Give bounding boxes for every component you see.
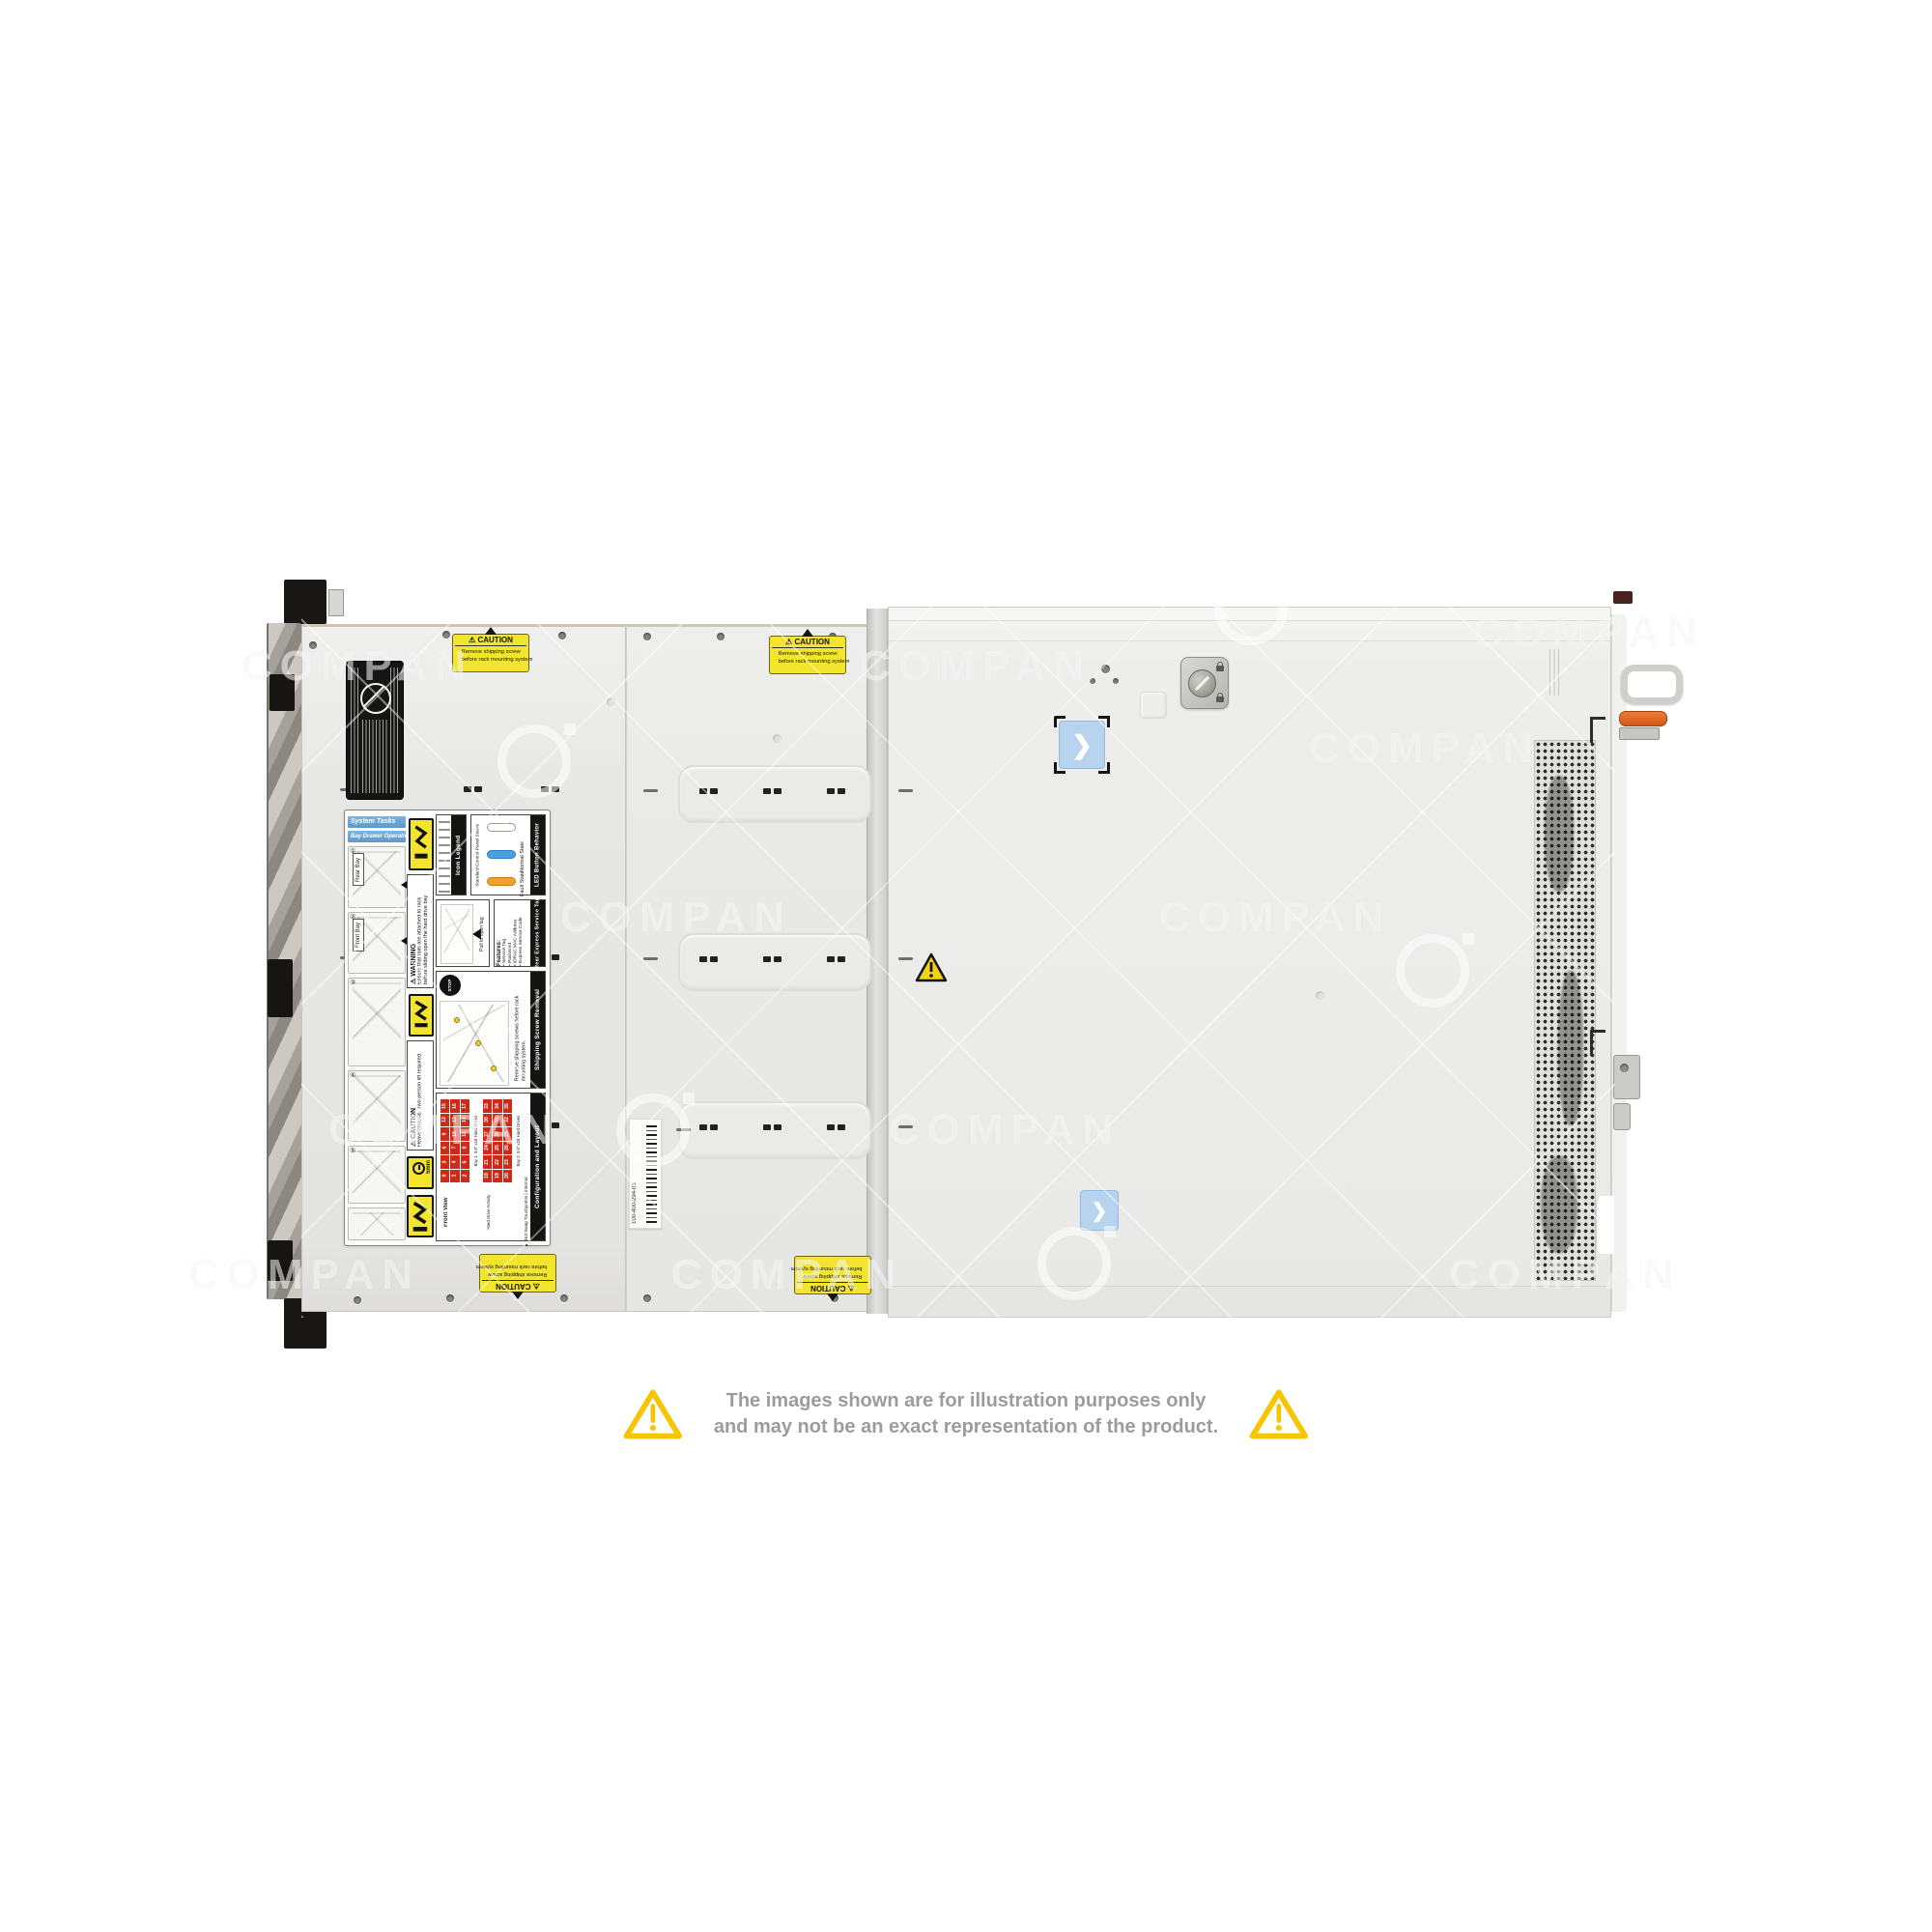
pinch-hazard-icon [407, 1195, 434, 1237]
rear-cap [1613, 591, 1633, 604]
drive-slot-1: 1 [450, 1170, 459, 1183]
caution-label-top-2: ⚠ CAUTION Remove shipping screw before r… [769, 636, 846, 674]
drive-grid-bay2: 333435303132272829242526212223181920 [483, 1099, 512, 1182]
rear-tag-content: Features: • Service Tag• Password• iDRAC… [497, 902, 531, 966]
vent-slot-pair [699, 1124, 718, 1130]
drive-slot-27: 27 [483, 1127, 492, 1141]
lock-icon [1216, 696, 1224, 702]
lock-knob [1188, 669, 1216, 697]
screw-hole [558, 632, 566, 639]
drive-slot-20: 20 [503, 1170, 512, 1183]
stop-icon: STOP [440, 975, 461, 996]
stamped-recess [678, 765, 871, 823]
corner-mark [1098, 762, 1110, 774]
drive-slot-3: 3 [440, 1155, 449, 1169]
drive-slot-10: 10 [450, 1127, 459, 1141]
drive-slot-11: 11 [461, 1127, 469, 1141]
vent-slot-pair [763, 956, 781, 962]
led-blank-state [487, 823, 516, 832]
front-corner-cap-top [284, 580, 327, 624]
drive-slot-29: 29 [503, 1127, 512, 1141]
drive-slot-18: 18 [483, 1170, 492, 1183]
bay-drawer-header: Bay Drawer Operation [348, 831, 406, 842]
vent-shadow [1545, 776, 1574, 892]
cover-top-bevel [889, 608, 1610, 621]
shipping-screw-box: STOP Remove shipping screws before rack … [436, 971, 546, 1089]
chevron-right-icon: ❯ [1071, 730, 1093, 760]
rear-metal-latch [1619, 727, 1660, 740]
step-number: ⑤ [350, 1147, 355, 1154]
drive-slot-34: 34 [493, 1099, 501, 1113]
caution-label-top-1: ⚠ CAUTION Remove shipping screw before r… [452, 634, 529, 672]
screw-dot [491, 1065, 497, 1071]
screw-hole [1113, 678, 1119, 684]
screw-hole [560, 1294, 568, 1302]
vent-slot-pair [699, 956, 718, 962]
shipping-header: Shipping Screw Removal [530, 972, 545, 1088]
barcode-number: 100-400-294-03 [632, 1123, 638, 1224]
barcode-icon [646, 1124, 657, 1223]
dash-mark [676, 1128, 691, 1131]
icon-legend-glyphs [439, 819, 450, 893]
dash-mark [898, 789, 913, 792]
bay1-label: Bay 1: 3.5" x18 Hard Drives [472, 1108, 480, 1173]
regulatory-label [346, 661, 404, 800]
corner-mark [1054, 716, 1065, 727]
led-fault-label: Fault State [518, 869, 527, 898]
drive-slot-17: 17 [461, 1099, 469, 1113]
cover-lock-plate [1180, 657, 1229, 709]
warning-box: ⚠ WARNING Ensure that rails are attached… [407, 874, 434, 988]
edge-bracket-mark [1590, 717, 1605, 743]
regulatory-microtext [390, 668, 399, 793]
icon-legend-box: Icon Legend [436, 814, 467, 895]
screw-hole [717, 633, 724, 640]
drive-slot-25: 25 [493, 1142, 501, 1155]
cover-edge-notch [1596, 1196, 1614, 1254]
drive-slot-21: 21 [483, 1155, 492, 1169]
product-photo-canvas: ⚠ CAUTION Remove shipping screw before r… [0, 0, 1932, 1932]
drive-slot-23: 23 [503, 1155, 512, 1169]
drive-slot-31: 31 [493, 1114, 501, 1127]
vent-slot-pair [827, 956, 845, 962]
step-number: ② [350, 913, 355, 921]
led-behavior-box: Standard Control Panel States Normal Sta… [470, 814, 546, 895]
stamped-recess [678, 933, 871, 991]
corner-mark [1054, 762, 1065, 774]
corner-mark [1098, 716, 1110, 727]
pinch-hazard-icon [409, 994, 434, 1037]
drive-slot-5: 5 [461, 1155, 469, 1169]
cover-seam-line [889, 640, 1610, 641]
rail-slot [268, 1240, 293, 1281]
vent-shadow [1558, 971, 1583, 1125]
cover-bottom-band [889, 1286, 1610, 1317]
crossed-circle-icon [360, 683, 391, 714]
vent-slot-pair [464, 786, 482, 792]
drive-slot-2: 2 [461, 1170, 469, 1183]
drive-slot-0: 0 [440, 1170, 449, 1183]
dash-mark [898, 1125, 913, 1128]
disclaimer-text: The images shown are for illustration pu… [714, 1388, 1218, 1440]
drive-slot-13: 13 [450, 1114, 459, 1127]
pinch-hazard-icon [409, 818, 434, 870]
vent-shadow [1541, 1156, 1577, 1253]
stamped-recess [678, 1101, 871, 1159]
caution-label-bottom-1: ⚠ CAUTION Remove shipping screw before r… [479, 1254, 556, 1293]
front-latch-tab [328, 589, 344, 616]
config-layout-box: 15161712131491011678345012 Bay 1: 3.5" x… [436, 1093, 546, 1241]
led-normal-state [487, 850, 516, 859]
drive-slot-22: 22 [493, 1155, 501, 1169]
disclaimer: The images shown are for illustration pu… [621, 1385, 1311, 1443]
dash-mark [643, 789, 658, 792]
screw-dot [475, 1040, 481, 1046]
etched-text [1549, 649, 1562, 696]
rear-bracket [1613, 1055, 1640, 1099]
drive-slot-33: 33 [483, 1099, 492, 1113]
disclaimer-line1: The images shown are for illustration pu… [714, 1388, 1218, 1414]
led-fault-state [487, 877, 516, 886]
drive-slot-14: 14 [461, 1114, 469, 1127]
screw-hole [1090, 678, 1095, 684]
screw-hole [442, 631, 450, 639]
screw-hole [643, 633, 651, 640]
screw-dot [454, 1017, 460, 1023]
led-normal-label: Normal State [518, 840, 527, 873]
drive-slot-12: 12 [440, 1114, 449, 1127]
screw-hole [354, 1296, 361, 1304]
unlock-icon [1216, 666, 1224, 671]
instruction-diagram-5 [348, 1146, 406, 1204]
front-bay-tag: Front Bay [353, 919, 364, 952]
vent-slot-pair [541, 786, 559, 792]
drive-slot-32: 32 [503, 1114, 512, 1127]
screw-hole [1101, 665, 1110, 673]
drive-slot-15: 15 [440, 1099, 449, 1113]
config-header: Configuration and Layout [530, 1094, 545, 1240]
chevron-right-icon: ❯ [1092, 1199, 1108, 1223]
caution-title: ⚠ CAUTION [455, 636, 526, 646]
system-tasks-header: System Tasks [348, 816, 406, 828]
drive-slot-24: 24 [483, 1142, 492, 1155]
dash-mark [643, 957, 658, 960]
instruction-diagram-4 [348, 1070, 406, 1142]
drive-slot-16: 16 [450, 1099, 459, 1113]
touchpoint-sticker: ❯ [1080, 1190, 1119, 1231]
features-list: • Service Tag• Password• iDRAC MAC Addre… [502, 902, 524, 966]
tag-drawing [440, 904, 473, 964]
drive-slot-35: 35 [503, 1099, 512, 1113]
drive-slot-8: 8 [461, 1142, 469, 1155]
rear-bracket-small [1613, 1103, 1631, 1130]
pull-tag-label: Pull to open tag [478, 907, 487, 961]
cover-divot [773, 734, 781, 743]
edge-bracket-mark [1590, 1030, 1605, 1056]
drive-slot-28: 28 [493, 1127, 501, 1141]
shipping-drawing [440, 1001, 509, 1086]
vent-slot-pair [763, 788, 781, 794]
led-header: LED Button Behavior [530, 815, 545, 895]
service-tag-diagram: Pull to open tag [436, 899, 490, 967]
embossed-square [1140, 692, 1167, 719]
drive-slot-7: 7 [450, 1142, 459, 1155]
vent-slot-pair [827, 788, 845, 794]
front-view-label: Front View [440, 1186, 452, 1238]
cover-divot [1316, 991, 1324, 1000]
hdd-activity-label: Hard Drive Activity [484, 1191, 494, 1233]
vent-slot-pair [763, 1124, 781, 1130]
led-sub-label: Standard Control Panel States [473, 823, 482, 887]
instruction-diagram-6 [348, 1207, 406, 1240]
rear-ring-handle [1621, 665, 1683, 704]
screw-hole [643, 1294, 651, 1302]
feature-item: • Express Service Code [519, 902, 525, 966]
regulatory-microtext [351, 668, 359, 793]
rear-orange-handle [1619, 711, 1667, 726]
warning-triangle-icon [1247, 1385, 1311, 1443]
rear-tag-header: Rear Express Service Tag [530, 900, 545, 966]
service-label-cluster: System Tasks Bay Drawer Operation ① ② ③ … [344, 810, 551, 1246]
drive-slot-9: 9 [440, 1127, 449, 1141]
shipping-text: Remove shipping screws before rack mount… [513, 980, 528, 1081]
drive-slot-19: 19 [493, 1170, 501, 1183]
screw-hole [446, 1294, 454, 1302]
cover-divot [607, 697, 615, 706]
rail-slot [268, 959, 293, 1017]
vent-slot-pair [827, 1124, 845, 1130]
drive-slot-6: 6 [440, 1142, 449, 1155]
cover-release-sticker: ❯ [1059, 721, 1105, 769]
cover-right-section [888, 607, 1611, 1318]
rear-tag-box: Features: • Service Tag• Password• iDRAC… [494, 899, 546, 967]
drive-slot-30: 30 [483, 1114, 492, 1127]
bay2-label: Bay 2: 3.5" x18 Hard Drives [515, 1108, 523, 1173]
drive-slot-4: 4 [450, 1155, 459, 1169]
warning-triangle-icon [621, 1385, 685, 1443]
caution-heavy-box: ⚠ CAUTION Heavy chassis. Two person lift… [407, 1040, 434, 1151]
rail-slot [270, 674, 295, 711]
instruction-diagram-3 [348, 978, 406, 1066]
caution-label-bottom-2: ⚠ CAUTION Remove shipping screw before r… [794, 1256, 871, 1294]
step-number: ① [350, 847, 355, 855]
barcode-sticker: 100-400-294-03 [629, 1119, 662, 1229]
drive-grid-bay1: 15161712131491011678345012 [440, 1099, 469, 1182]
config-sub-label: ■ Hot Swap Touchpoints | Internal [523, 1190, 531, 1235]
step-number: ③ [350, 979, 355, 986]
disclaimer-line2: and may not be an exact representation o… [714, 1414, 1218, 1440]
warning-triangle-sticker [915, 952, 948, 983]
icon-legend-header: Icon Legend [451, 815, 466, 895]
regulatory-microtext [362, 720, 387, 793]
dash-mark [898, 957, 913, 960]
drive-slot-26: 26 [503, 1142, 512, 1155]
step-number: ④ [350, 1071, 355, 1079]
bracket-screw [1620, 1064, 1629, 1072]
vent-grid [1534, 740, 1596, 1281]
rear-bay-tag: Rear Bay [353, 853, 364, 886]
five-minute-icon: 5min [407, 1156, 434, 1189]
vent-slot-pair [699, 788, 718, 794]
screw-hole [309, 641, 317, 649]
